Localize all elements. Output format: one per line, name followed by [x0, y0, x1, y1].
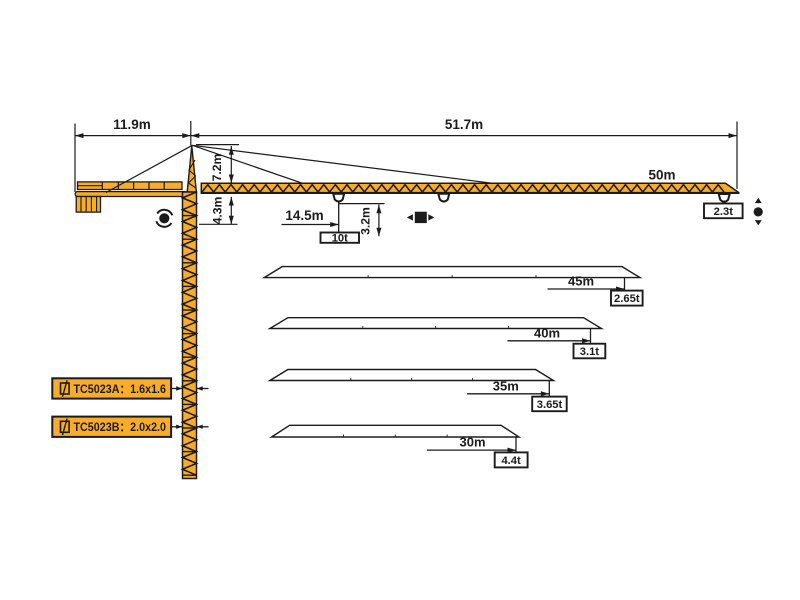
svg-text:7.2m: 7.2m [210, 153, 224, 181]
svg-text:3.65t: 3.65t [537, 399, 563, 411]
svg-text:35m: 35m [493, 378, 519, 393]
svg-text:TC5023B：2.0x2.0: TC5023B：2.0x2.0 [74, 422, 167, 434]
svg-text:30m: 30m [459, 435, 485, 450]
svg-text:45m: 45m [568, 274, 594, 289]
svg-text:40m: 40m [534, 325, 560, 340]
svg-text:4.3m: 4.3m [211, 196, 225, 224]
svg-text:2.3t: 2.3t [714, 206, 734, 218]
svg-text:3.2m: 3.2m [358, 207, 372, 235]
svg-text:11.9m: 11.9m [113, 117, 151, 132]
svg-text:TC5023A：1.6x1.6: TC5023A：1.6x1.6 [74, 384, 167, 396]
svg-text:2.65t: 2.65t [614, 293, 640, 305]
svg-text:10t: 10t [332, 233, 348, 245]
svg-text:50m: 50m [648, 168, 675, 183]
svg-text:51.7m: 51.7m [445, 117, 483, 132]
svg-text:3.1t: 3.1t [580, 346, 600, 358]
svg-text:14.5m: 14.5m [285, 208, 323, 223]
svg-text:4.4t: 4.4t [501, 455, 521, 467]
